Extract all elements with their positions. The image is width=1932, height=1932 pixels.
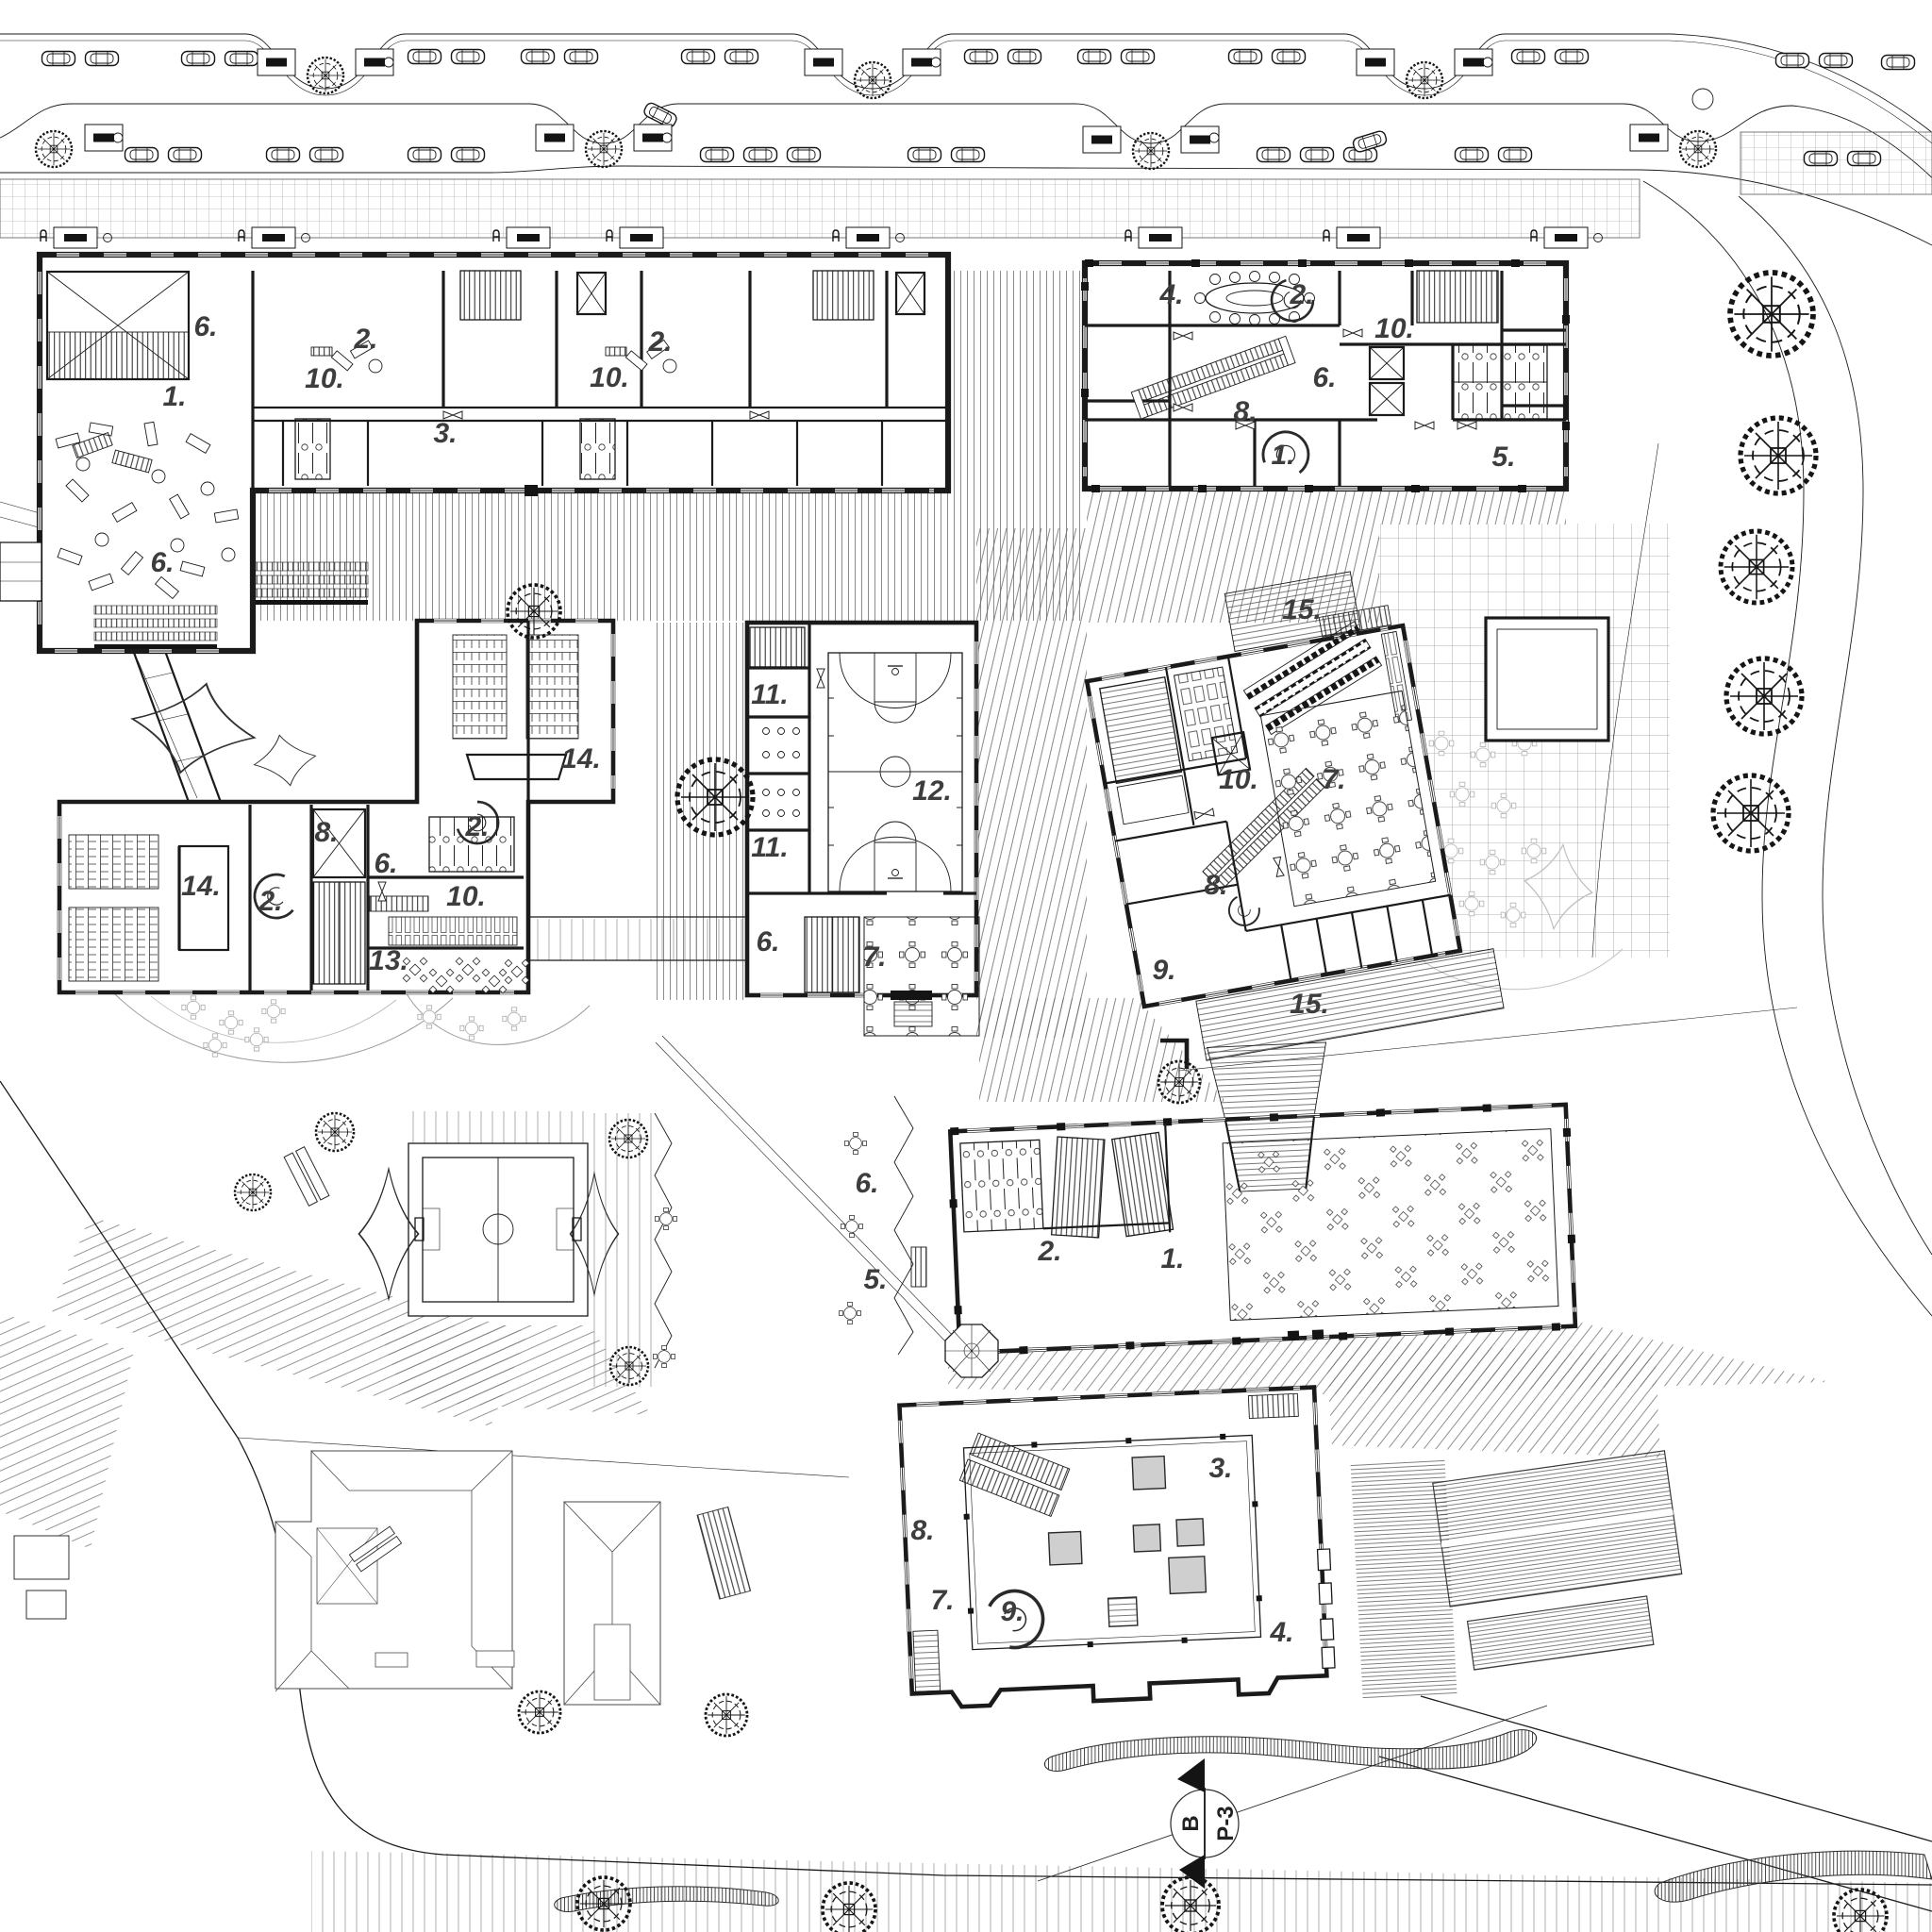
room-label: 12. (912, 775, 952, 807)
grand-entry-steps (1207, 1042, 1329, 1121)
room-label: 6. (756, 926, 779, 958)
toilets (295, 419, 330, 479)
room-label: 2. (353, 324, 377, 355)
room-label: 10. (1374, 313, 1414, 344)
room-label: 4. (1269, 1617, 1293, 1648)
hall-tables (1223, 1129, 1558, 1321)
room-label: 2. (464, 811, 489, 842)
car-row-2 (125, 148, 1881, 166)
room-label: 10. (305, 363, 344, 394)
stairs-icon (1417, 271, 1498, 323)
room-label: 9. (1152, 955, 1175, 986)
room-label: 14. (561, 743, 601, 774)
section-marker-icon: B P-3 (1038, 1706, 1547, 1889)
room-label: 1. (1160, 1243, 1184, 1274)
room-label: 15. (1290, 989, 1329, 1020)
stairs-icon (370, 896, 428, 911)
round-table-icon (845, 1133, 867, 1155)
toilets (960, 1140, 1043, 1232)
room-label: 9. (1000, 1596, 1024, 1627)
auditorium-seats (69, 835, 158, 889)
room-label: 6. (374, 848, 397, 879)
parking-meter-icon (258, 49, 295, 75)
auditorium-seats (526, 635, 578, 739)
round-table-icon (182, 996, 205, 1019)
room-label: 7. (862, 941, 886, 973)
stairs-icon (813, 271, 874, 320)
bench-icon (284, 1147, 329, 1207)
room-label: 2. (647, 326, 672, 358)
car-icon (42, 52, 75, 66)
entrance-mark (525, 485, 538, 496)
room-label: 6. (150, 547, 174, 578)
room-label: 8. (910, 1515, 934, 1546)
stairs-icon (750, 627, 805, 667)
tree-icon (677, 759, 753, 835)
room-label: 8. (314, 817, 338, 848)
canopy-icon (249, 731, 321, 791)
site-plan-drawing: B P-3 6. 2. 10. 1. 3. 2. 10. 6. 4. 2. 10… (0, 0, 1932, 1932)
stairs-icon (460, 271, 521, 320)
ticket-machine-icon (54, 227, 97, 248)
stairs-icon (913, 1630, 941, 1691)
stairs-icon (1248, 1393, 1298, 1418)
tree-icon (508, 585, 560, 638)
outdoor-ramp (697, 1507, 751, 1599)
car-row-1 (42, 50, 1915, 70)
toilets (580, 419, 615, 479)
auditorium-seats (453, 635, 507, 739)
room-label: 5. (863, 1264, 887, 1295)
room-label: 6. (1312, 362, 1336, 393)
room-label: 3. (433, 418, 457, 449)
room-label: 6. (855, 1168, 878, 1199)
room-label: 3. (1208, 1453, 1232, 1484)
room-label: 1. (162, 381, 186, 412)
tree-icon (308, 58, 343, 93)
entry-steps (894, 1002, 932, 1026)
stairs-icon (313, 882, 365, 984)
room-label: 15. (1282, 594, 1322, 625)
zigzag-canopy-edge (655, 1113, 672, 1368)
room-label: 14. (181, 871, 221, 902)
room-label: 6. (193, 311, 217, 342)
room-label: 8. (1233, 396, 1257, 427)
walkway-steps (911, 1247, 926, 1287)
room-label: 11. (751, 832, 788, 863)
pergola-icon (945, 1324, 998, 1377)
room-label: 10. (1219, 764, 1258, 795)
room-label: 1. (1271, 440, 1294, 471)
room-label: 8. (1204, 870, 1227, 901)
entrance-mark (891, 991, 932, 1000)
room-label: 4. (1158, 279, 1183, 310)
stairs-icon (1052, 1137, 1105, 1238)
serpentine-bench-icon (1044, 1730, 1536, 1772)
context-roofs (275, 1451, 751, 1705)
section-letter: B (1178, 1815, 1204, 1831)
room-label: 10. (446, 881, 486, 912)
building-courtyard-hall (899, 1387, 1336, 1708)
room-label: 2. (1037, 1236, 1061, 1267)
reflecting-pool (1486, 618, 1608, 741)
stairs-icon (47, 332, 189, 379)
room-label: 7. (1322, 764, 1345, 795)
room-label: 10. (590, 362, 629, 393)
room-label: 11. (751, 679, 788, 710)
site-plan-page: B P-3 6. 2. 10. 1. 3. 2. 10. 6. 4. 2. 10… (0, 0, 1932, 1932)
room-label: 7. (930, 1585, 954, 1616)
room-label: 2. (1289, 279, 1313, 310)
room-label: 13. (369, 945, 408, 976)
context-hatched-buildings (1433, 1451, 1691, 1673)
servery-shelves (389, 917, 517, 945)
room-label: 5. (1491, 441, 1515, 473)
auditorium-seats (69, 908, 158, 981)
room-label: 2. (258, 886, 282, 917)
zigzag-canopy-edge (894, 1096, 913, 1355)
tree-icon (1730, 273, 1813, 356)
section-sheet: P-3 (1213, 1806, 1239, 1840)
